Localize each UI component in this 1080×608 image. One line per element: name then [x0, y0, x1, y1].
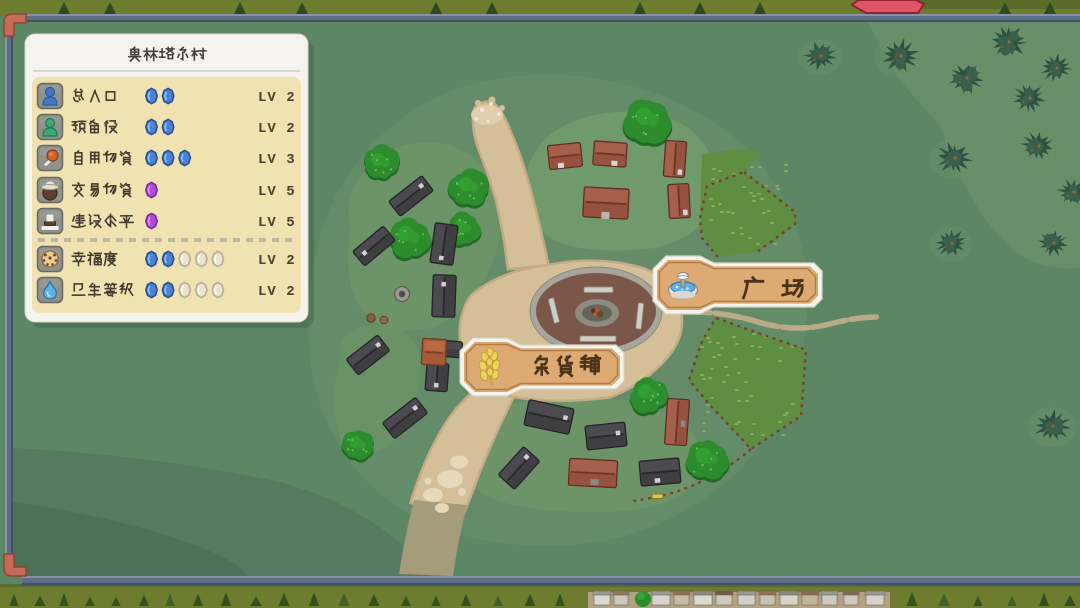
svg-text:LV 2: LV 2	[258, 90, 296, 106]
svg-text:LV 5: LV 5	[258, 215, 296, 231]
svg-text:LV 3: LV 3	[258, 152, 296, 168]
svg-text:LV 2: LV 2	[258, 121, 296, 137]
svg-text:LV 5: LV 5	[258, 184, 296, 200]
svg-text:LV 2: LV 2	[258, 284, 296, 300]
svg-text:LV 2: LV 2	[258, 253, 296, 269]
